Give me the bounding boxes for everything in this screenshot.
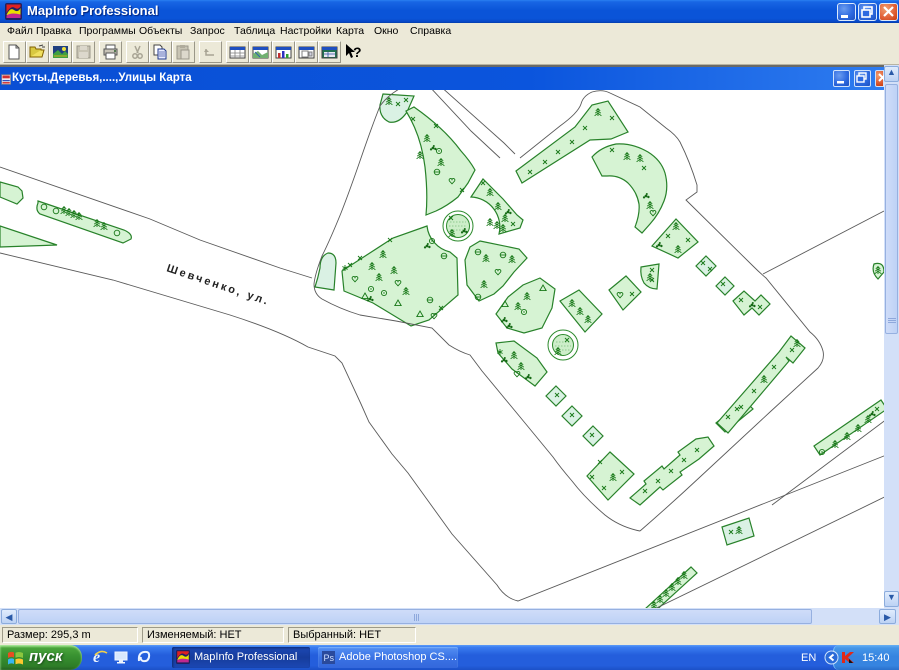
svg-text:?: ?	[353, 44, 362, 60]
svg-text:Шевченко, ул.: Шевченко, ул.	[165, 262, 271, 308]
svg-text:Ps: Ps	[324, 653, 335, 663]
